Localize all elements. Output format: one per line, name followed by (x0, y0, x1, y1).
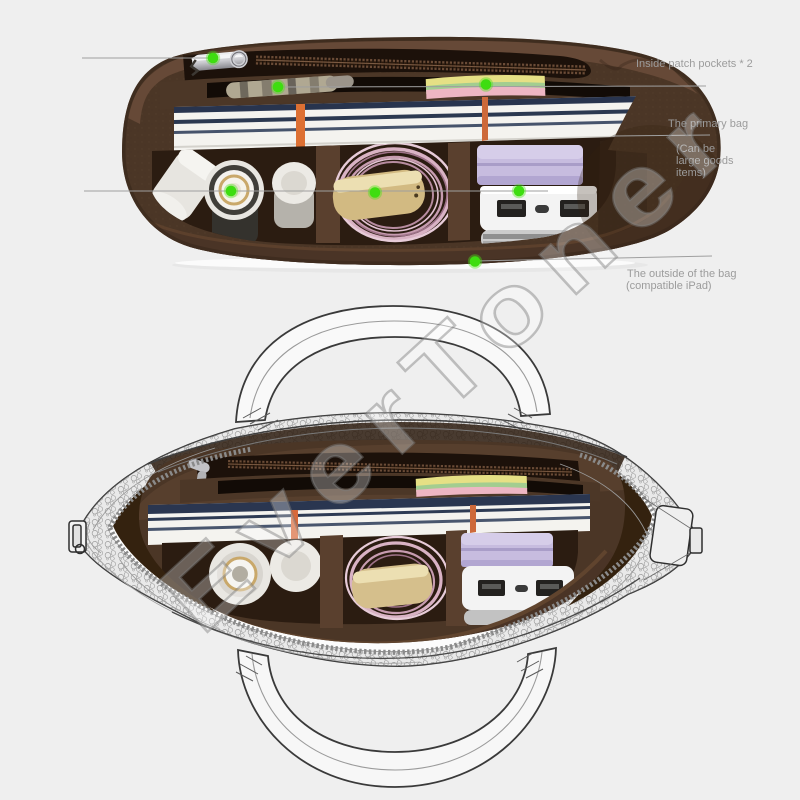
svg-text:(compatible iPad): (compatible iPad) (626, 280, 712, 292)
svg-text:The outside of the bag: The outside of the bag (627, 268, 736, 280)
svg-text:Inside patch pockets * 2: Inside patch pockets * 2 (636, 58, 753, 70)
